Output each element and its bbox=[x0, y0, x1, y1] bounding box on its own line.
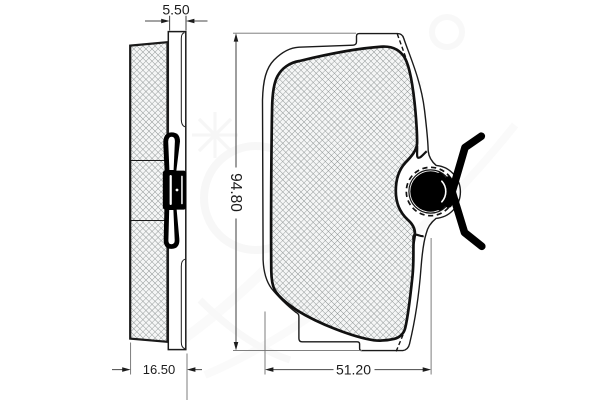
svg-text:51.20: 51.20 bbox=[336, 362, 371, 378]
svg-text:5.50: 5.50 bbox=[162, 2, 189, 18]
svg-text:94.80: 94.80 bbox=[227, 173, 244, 212]
svg-text:16.50: 16.50 bbox=[143, 362, 176, 377]
